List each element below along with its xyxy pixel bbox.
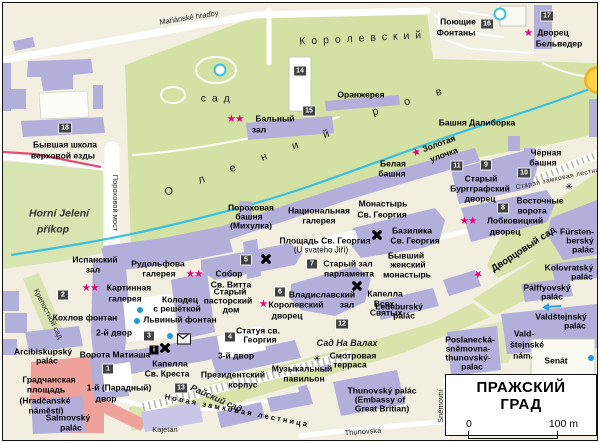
map-label: Vald- [514,329,534,338]
map-label: Св. Креста [145,369,190,378]
map-label: Георгия [243,335,276,344]
scale-bar [468,431,558,439]
map-label: palác [393,311,415,320]
map-label: 2-й двор [96,328,132,337]
church-icon [160,343,171,354]
map-label: галерея [108,294,141,303]
sight-stars-icon: ★★ [82,283,99,294]
map-label: Пороховой мост [111,175,119,232]
map-label: palac [461,362,483,371]
sight-stars-icon: ★★ [186,269,203,280]
map-label: Senát [544,356,567,365]
map-label: 3-й двор [218,351,254,360]
pond-icon [214,64,227,77]
map-label: башня [529,158,556,167]
map-label: 1-й (Парадный) [87,383,152,392]
map-number-badge: 12 [336,320,348,329]
viewpoint-icon: ✳ [313,355,321,364]
map-label: Национальная [288,206,350,215]
map-label: nám. [513,351,533,360]
map-label: Сад На Валах [316,339,377,349]
info-icon: i [150,346,159,355]
map-label: Старый зал [323,259,372,268]
map-label: Дворец [537,28,569,37]
map-label: Лобковицкий [487,216,543,225]
map-label: (Михулка) [230,221,272,230]
map-label: Белая [380,159,406,168]
map-number-badge: 18 [59,124,71,133]
map-label: Старый [465,174,498,183]
map-label: příkop [37,224,69,235]
map-label: Королевский [268,300,323,309]
map-label: Св. Георгия [357,210,406,219]
map-label: štejnské [510,340,544,349]
map-label: Монастырь [359,199,408,208]
map-label: Площадь Св. Георгия [280,236,371,245]
map-label: Капелла [152,359,187,368]
map-number-badge: 17 [541,12,553,21]
map-label: Львиный фонтан [143,315,216,324]
sight-stars-icon: ★ [472,268,485,281]
fountain-icon [137,307,143,313]
sight-stars-icon: ★ [259,299,267,310]
map-number-badge: 13 [175,384,187,393]
map-label: Бывшая школа [33,140,97,149]
map-label: Поющие [440,17,476,26]
map-label: зал [86,265,100,274]
map-label: К о р о л е в с к и й [299,30,423,48]
map-number-badge: 7 [307,260,317,269]
map-label: павильон [283,374,324,383]
map-label: Kajetán [152,426,177,434]
map-label: Бельведер [536,39,583,48]
map-label: Чёрная [531,148,562,157]
map-label: дворец [465,194,496,203]
map-label: Кохлов фонтан [53,313,118,322]
map-label: Бургграфский [450,184,510,193]
map-label: Бальный [255,114,294,123]
map-label: Св. Георгия [390,236,439,245]
map-label: женский [390,260,425,269]
map-number-badge: 2 [58,291,68,300]
map-label: башня [378,169,405,178]
map-number-badge: 6 [275,288,285,297]
map-label: palác [571,272,593,281]
map-label: галерея [302,216,335,225]
map-label: Владиславский [289,290,355,299]
map-label: Собор [216,269,243,278]
map-label: корпус [229,380,258,389]
map-label: (Hradčanské [19,396,70,405]
map-number-badge: 1 [103,365,113,374]
map-label: Thunovská [344,427,381,438]
map-label: Градчанская [22,375,75,384]
map-label: palác [36,356,58,365]
map-label: площадь [27,385,65,394]
map-label: Оранжерея [337,90,384,99]
sight-stars-icon: ★★ [227,114,244,125]
map-title: ПРАЖСКИЙ ГРАД [454,379,588,413]
map-label: верховой езды [31,151,95,160]
map-label: Новая замковая лестница [164,393,310,429]
scale-end: 100 m [549,418,578,430]
map-label: ворота [517,206,546,215]
map-label: р о в [371,83,455,119]
map-label: Капелла [367,289,402,298]
map-label: Horní Jelení [29,208,89,219]
pond-icon [494,8,507,21]
fountain-icon [167,333,173,339]
map-label: с решёткой [153,304,201,313]
map-label: Salmovský [46,413,90,422]
map-page: Mariánské hradbyК о р о л е в с к и йс а… [0,0,600,443]
map-label: palác [564,321,586,330]
map-number-badge: 11 [451,162,462,171]
map-label: с а д [201,93,232,104]
map-label: Президентский [201,370,265,379]
map-label: дворец [272,311,303,320]
map-label: дом [223,305,240,314]
map-label: Great Britian) [355,404,409,413]
church-icon [372,230,383,241]
map-label: галерея [142,269,175,278]
map-label: (U svatého Jiří) [294,247,348,256]
map-label: зал [340,300,354,309]
map-label: Sněmovní [437,389,445,423]
map-number-badge: 14 [294,67,306,76]
map-label: двор [96,394,117,403]
map-label: терраса [333,360,367,369]
map-label: парламента [324,269,374,278]
map-number-badge: 9 [481,161,491,170]
sight-stars-icon: ★ [410,147,422,160]
map-label: дворец [490,227,521,236]
map-number-badge: 10 [518,169,530,178]
map-label: Восточные [516,196,563,205]
map-title-box: ПРАЖСКИЙ ГРАД 0 100 m [445,374,597,436]
sight-stars-icon: ★ [524,28,532,39]
sight-stars-icon: ★★ [460,216,477,227]
map-number-badge: 4 [225,333,235,342]
map-label: palác [60,423,82,432]
fountain-icon [134,318,140,324]
map-label: Рудольфова [131,259,185,268]
map-number-badge: 16 [481,20,493,29]
map-label: Картинная [107,283,151,292]
church-icon [261,254,272,265]
map-number-badge: 8 [498,204,508,213]
map-number-badge: 5 [241,256,251,265]
church-icon [352,281,363,292]
map-label: Ворота Матиаша [80,350,151,359]
map-label: монастырь [383,270,431,279]
map-label: Mariánské hradby [159,9,219,26]
map-label: Музыкальный [272,364,332,373]
entrance-arrow-icon [541,302,561,312]
map-label: О л е н и й [163,125,343,200]
map-label: Башня Далиборка [439,118,515,127]
fountain-icon [588,355,594,361]
map-label: palác [541,292,563,301]
map-label: palác [572,245,594,254]
map-label: Фонтаны [437,28,476,37]
post-office-icon [177,334,191,345]
map-label: Испанский [72,255,117,264]
scale-start: 0 [466,418,472,430]
map-label: зал [252,125,266,134]
prague-castle-map: Mariánské hradbyК о р о л е в с к и йс а… [2,2,598,441]
map-number-badge: 3 [144,332,154,341]
map-label: Базилика [392,226,432,235]
map-number-badge: 15 [303,107,315,116]
viewpoint-icon: ✳ [565,183,573,192]
roundabout-icon [584,66,598,94]
